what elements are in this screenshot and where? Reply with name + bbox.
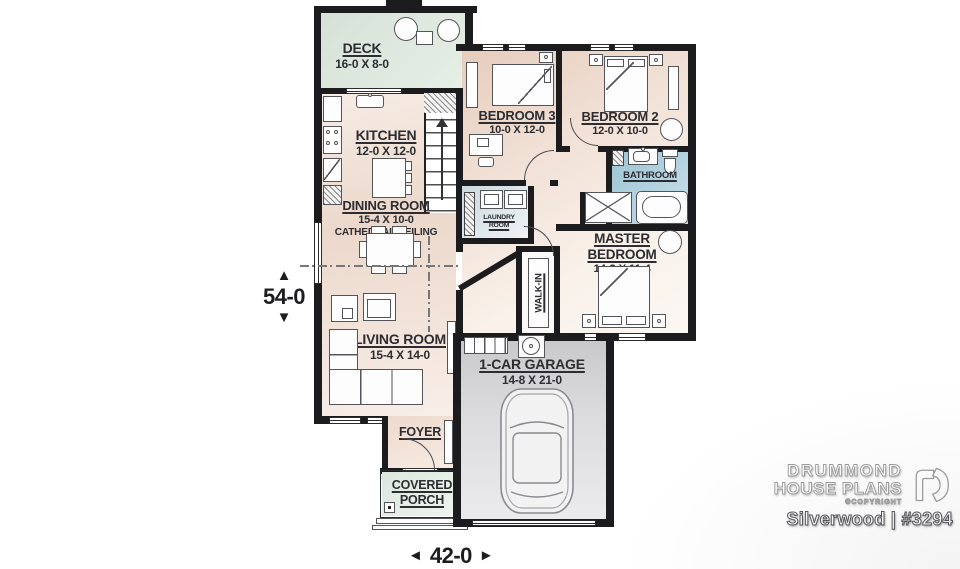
refrigerator-icon [323,96,342,122]
washer-icon [480,190,503,209]
room-size: 15-4 X 10-0 [335,214,438,227]
linen-closet [585,192,632,223]
room-name: LIVING ROOM [354,331,446,348]
room-label-garage: 1-CAR GARAGE 14-8 X 21-0 [479,356,585,387]
wall [314,6,477,13]
room-name: WALK-IN [533,273,544,312]
wall [453,341,461,527]
room-name: KITCHEN [356,127,417,144]
window [508,44,526,51]
pillow [626,316,646,325]
kitchen-sink-icon [356,95,384,108]
deck-chair [437,19,460,42]
window [314,222,322,284]
centerline [300,265,458,267]
bar-stool [405,185,412,195]
bed-fold [600,268,628,296]
room-label-walkin: WALK-IN [533,273,544,312]
room-name: ROOM [483,222,515,230]
garage-steps [464,337,508,354]
bed-fold [606,62,634,90]
stairs-cut [424,93,460,113]
room-label-kitchen: KITCHEN 12-0 X 12-0 [356,127,417,158]
dishwasher-icon [323,158,342,182]
water-heater-icon [518,335,545,358]
laundry-shelf [464,192,475,236]
dryer-icon [504,190,527,209]
porch-step [376,518,464,524]
room-name: DECK [335,40,389,57]
room-label-bathroom: BATHROOM [623,170,677,181]
arrow-down-icon: ▼ [277,310,292,325]
chair [660,118,683,141]
centerline [428,236,430,332]
room-size: 16-0 X 8-0 [335,57,389,71]
dining-table [366,233,414,267]
nightstand [649,54,663,66]
garage-door [472,520,596,526]
brand-line1: DRUMMOND [774,462,902,480]
room-label-bedroom3: BEDROOM 3 10-0 X 12-0 [479,108,556,137]
width-value: 42-0 [430,544,472,567]
stove-icon [323,126,342,154]
room-name: COVERED [392,478,452,493]
wall [556,51,562,152]
dining-chair [392,226,407,234]
side-table [331,295,358,322]
window [590,44,610,51]
stairs-arrowhead [436,118,448,127]
room-size: 10-0 X 12-0 [479,124,556,137]
desk-chair [478,157,494,167]
nightstand [652,314,666,328]
plan-name: Silverwood | #3294 [735,509,953,530]
wall [382,416,388,474]
room-name: BEDROOM [587,247,656,263]
bar-stool [405,173,412,183]
window [482,44,504,51]
room-label-porch: COVERED PORCH [392,478,452,508]
lounge-chair [658,230,682,254]
room-size: 14-8 X 21-0 [479,373,585,387]
dining-chair [392,266,407,274]
sofa-sectional [329,369,423,405]
deck-table [416,31,433,45]
pillow [602,316,622,325]
room-name: BEDROOM 3 [479,108,556,124]
room-name: BATHROOM [623,170,677,181]
wall [562,146,570,152]
wall [554,246,560,340]
brand-block: DRUMMOND HOUSE PLANS ©COPYRIGHT Silverwo… [735,462,953,530]
dining-chair [413,241,421,258]
window [614,44,634,51]
drummond-logo [907,462,953,506]
wall [556,224,696,231]
room-name: DINING ROOM [335,198,438,214]
desk-item [477,138,489,147]
vanity-sink-icon [628,148,658,165]
room-name: MASTER [587,231,656,247]
room-size: 12-0 X 12-0 [356,144,417,158]
brand-copyright: ©COPYRIGHT [774,499,902,506]
wall [550,180,558,186]
nightstand [582,314,596,328]
room-name: PORCH [392,493,452,508]
deck-chair [394,17,418,41]
toilet-icon [662,149,678,157]
nightstand [589,54,603,66]
bar-stool [405,161,412,171]
bathtub-icon [636,191,688,224]
foyer-closet [444,420,453,464]
room-label-laundry: LAUNDRY ROOM [483,214,515,230]
patio-door [346,88,402,94]
window [329,417,361,424]
arrow-up-icon: ▲ [277,268,292,283]
arrow-right-icon: ► [479,548,494,563]
kitchen-island [372,158,406,198]
dresser [466,62,478,108]
stairs-arrow [441,126,443,200]
dining-chair [371,266,386,274]
dresser [668,66,679,110]
nightstand [539,52,553,63]
wall [606,333,614,527]
bed-fold [518,66,552,104]
brand-line2: HOUSE PLANS [774,480,902,498]
height-value: 54-0 [263,285,305,308]
car-icon [498,386,576,516]
wall [314,6,321,94]
wall [688,44,696,341]
arrow-left-icon: ◄ [408,548,423,563]
room-size: 15-4 X 14-0 [354,348,446,362]
armchair [363,293,396,321]
room-name: LAUNDRY [483,214,515,222]
dining-chair [359,241,367,258]
window [618,333,646,341]
width-dimension: ◄ 42-0 ► [408,544,494,567]
dining-chair [371,226,386,234]
floor-plan: DECK 16-0 X 8-0 KITCHEN 12-0 X 12-0 DINI… [0,0,960,569]
room-name: 1-CAR GARAGE [479,356,585,373]
room-label-living: LIVING ROOM 15-4 X 14-0 [354,331,446,362]
bathroom-shelf [612,150,624,166]
room-label-deck: DECK 16-0 X 8-0 [335,40,389,71]
height-dimension: ▲ 54-0 ▼ [256,268,312,325]
